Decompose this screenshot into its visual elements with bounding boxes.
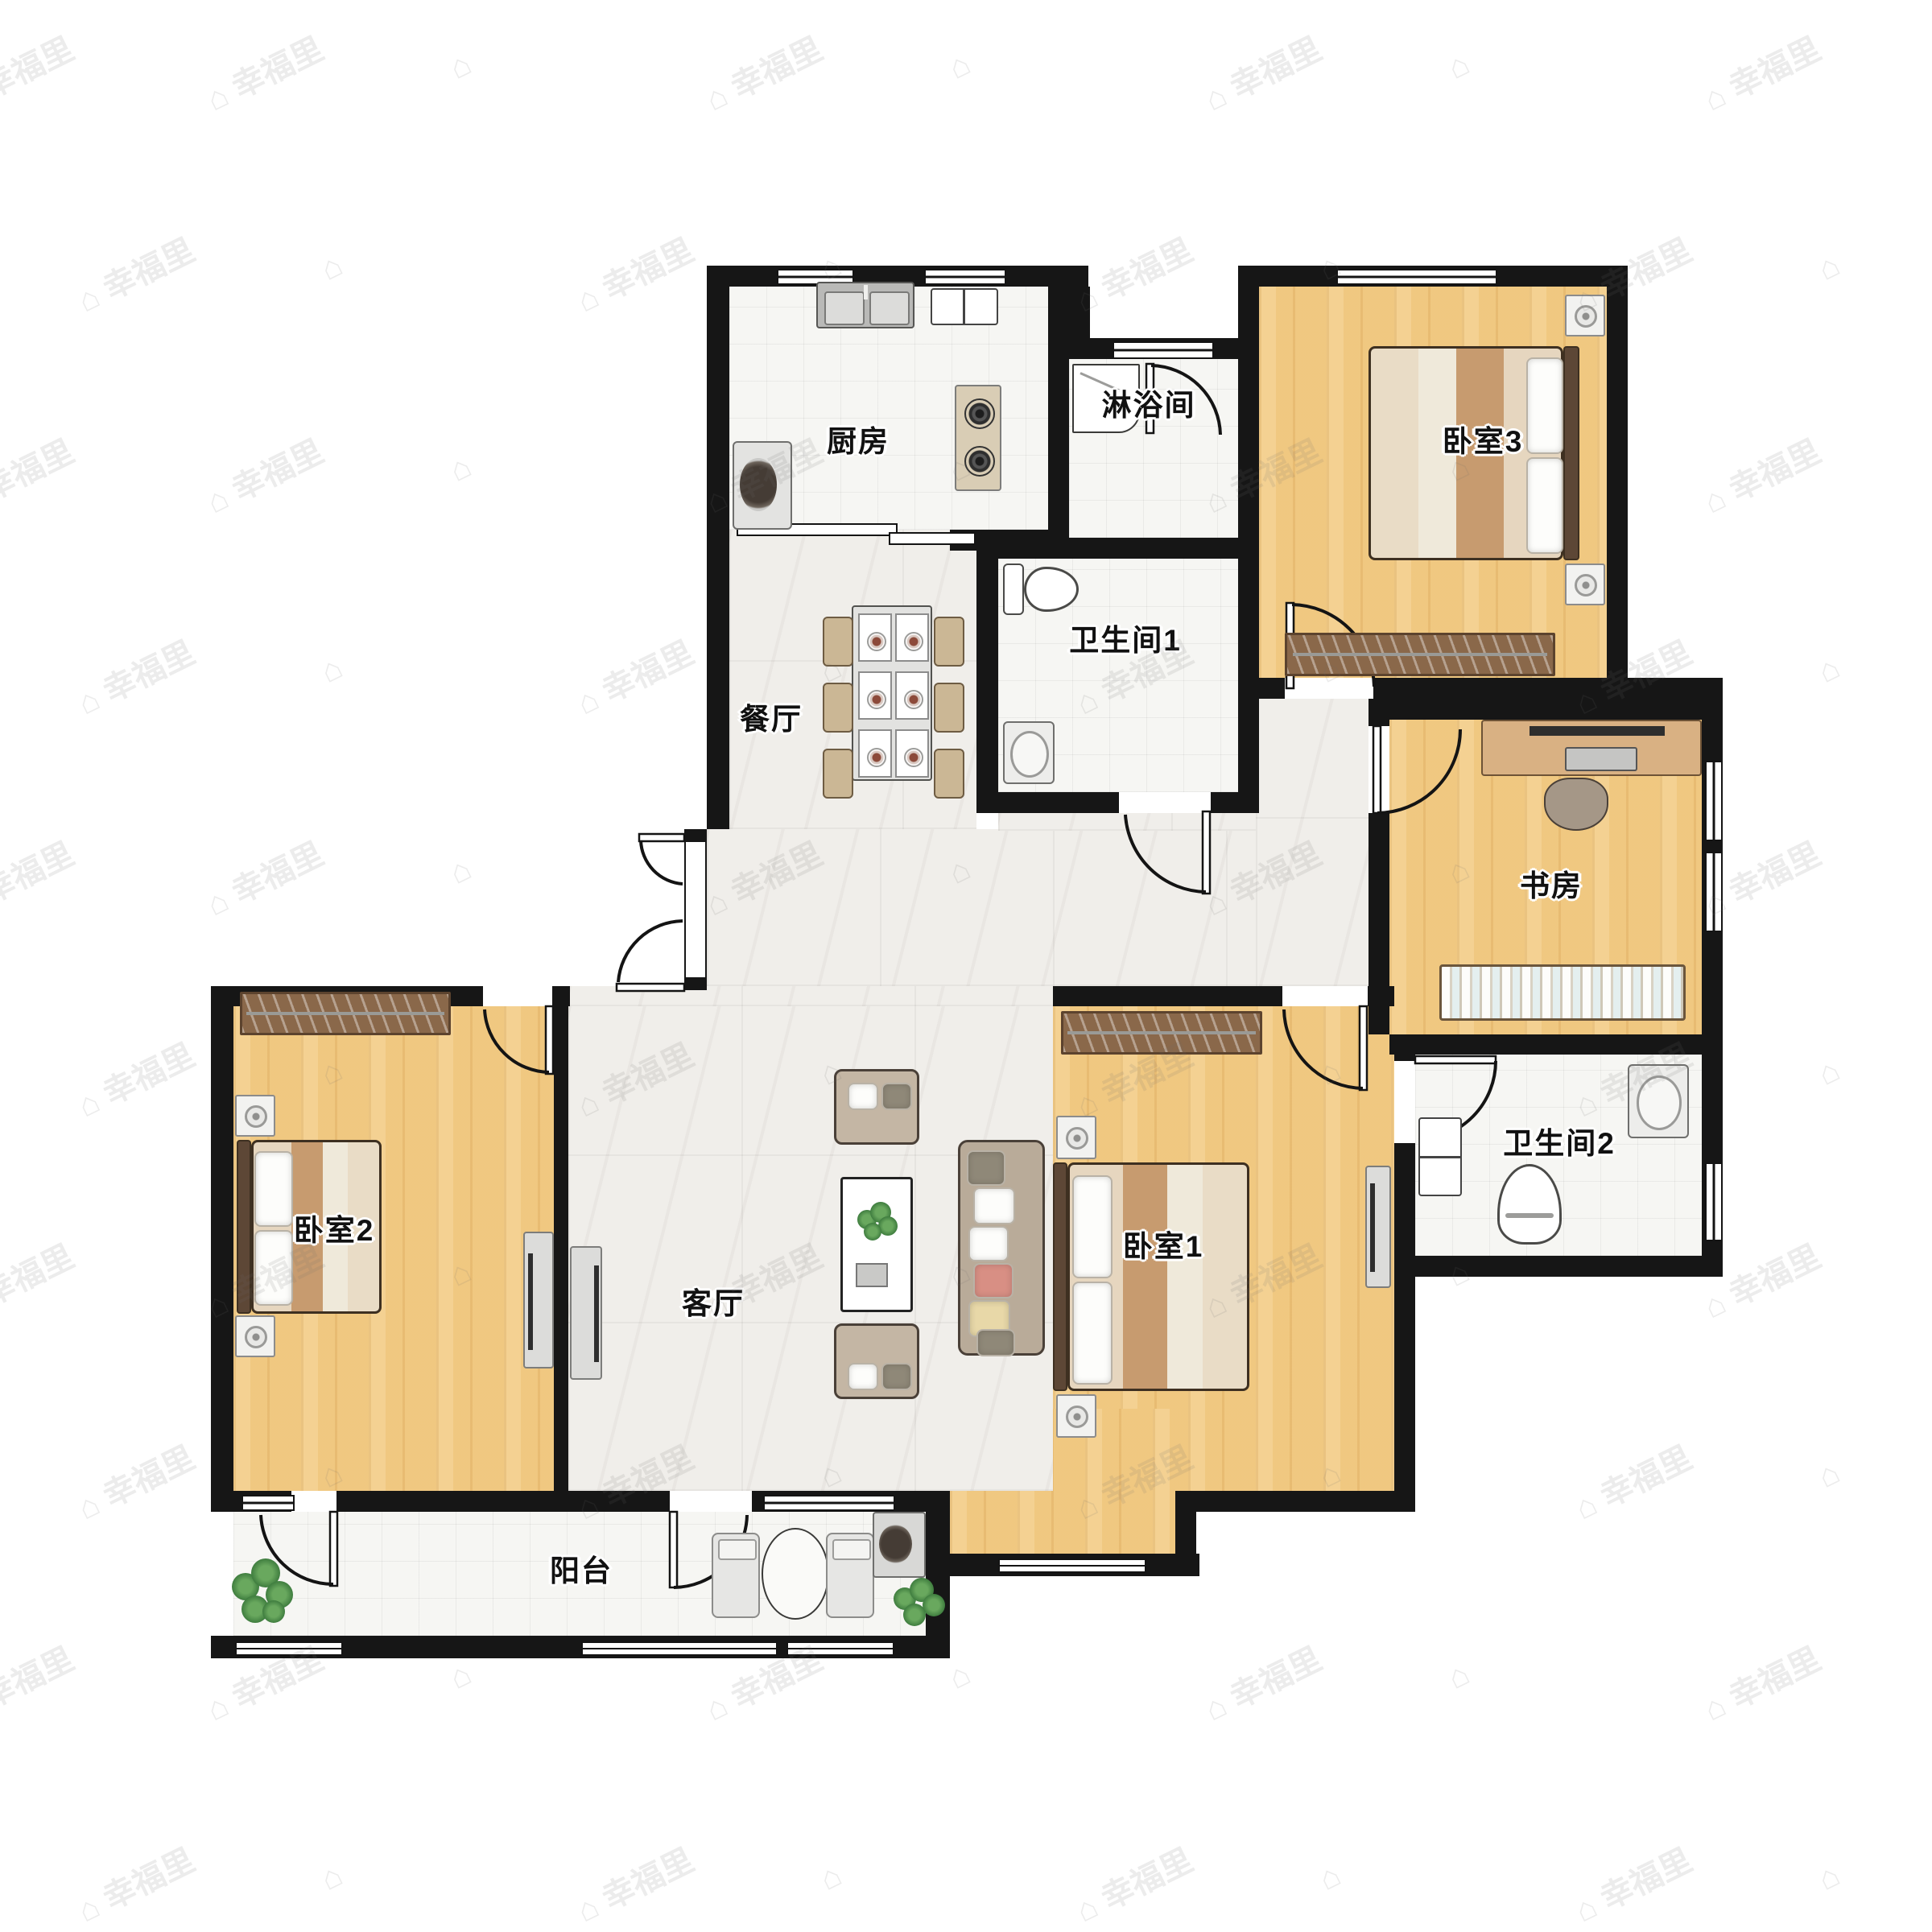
wall [1389, 699, 1723, 720]
corridor-floor [1256, 699, 1368, 986]
room-label-bedroom2: 卧室2 [294, 1206, 375, 1249]
pillow [1072, 1282, 1113, 1385]
window [1705, 852, 1723, 932]
window [1705, 761, 1723, 841]
watermark: ⌂ 幸福里 [68, 1030, 201, 1126]
toilet-bath1 [1003, 563, 1024, 615]
pillow [254, 1151, 293, 1227]
room-label-balcony: 阳台 [550, 1546, 613, 1590]
watermark: ⌂ [1313, 1857, 1346, 1898]
window [998, 1558, 1146, 1573]
dining-chair [823, 683, 853, 733]
armchair [834, 1323, 919, 1399]
dining-chair [823, 749, 853, 799]
watermark: ⌂ [1442, 1656, 1475, 1697]
window [1113, 341, 1214, 359]
wall [1238, 287, 1259, 813]
dining-table [852, 605, 932, 781]
window [1336, 269, 1497, 285]
stove [955, 385, 1001, 491]
watermark: ⌂ 幸福里 [1695, 426, 1827, 522]
kitchen-sink [816, 282, 914, 328]
watermark: ⌂ [1812, 247, 1845, 288]
dining-chair [823, 617, 853, 667]
door-opening [291, 1491, 336, 1512]
watermark: ⌂ [315, 247, 348, 288]
watermark: ⌂ 幸福里 [1566, 1835, 1699, 1931]
wall [976, 541, 998, 813]
watermark: ⌂ 幸福里 [197, 828, 330, 925]
watermark: ⌂ 幸福里 [0, 1231, 80, 1327]
room-label-dining: 餐厅 [740, 695, 803, 738]
window [235, 1641, 343, 1656]
wardrobe-bedroom3 [1285, 633, 1555, 676]
wardrobe-bedroom1 [1061, 1011, 1262, 1055]
pillow [254, 1230, 293, 1306]
door-bath1 [1122, 811, 1212, 898]
wall [1415, 1256, 1723, 1277]
watermark: ⌂ 幸福里 [1695, 23, 1827, 120]
watermark: ⌂ [444, 46, 477, 87]
wall [211, 986, 233, 1512]
wall [1175, 1491, 1415, 1512]
wall [554, 1006, 568, 1491]
dining-chair [934, 683, 964, 733]
room-label-bath1: 卫生间1 [1069, 616, 1182, 659]
watermark: ⌂ 幸福里 [0, 426, 80, 522]
wall [1389, 1034, 1723, 1055]
watermark: ⌂ 幸福里 [1195, 1633, 1328, 1730]
door-opening [686, 842, 705, 977]
plant [892, 1576, 948, 1629]
sofa [958, 1140, 1045, 1356]
tv-console-bedroom2 [523, 1232, 554, 1368]
watermark: ⌂ 幸福里 [568, 627, 700, 724]
watermark: ⌂ 幸福里 [197, 426, 330, 522]
watermark: ⌂ [1442, 46, 1475, 87]
room-label-kitchen: 厨房 [827, 417, 890, 460]
wardrobe-bedroom2 [240, 992, 451, 1035]
watermark: ⌂ 幸福里 [696, 23, 829, 120]
pillow [1526, 457, 1563, 554]
plant [230, 1557, 298, 1628]
wall [552, 986, 570, 1006]
watermark: ⌂ [1812, 1052, 1845, 1093]
window [786, 1641, 894, 1656]
tv-console-living [570, 1246, 602, 1380]
sliding-door-kitchen [889, 532, 976, 545]
wall [1048, 266, 1069, 559]
room-label-living: 客厅 [682, 1279, 745, 1323]
bath2-shelf [1418, 1117, 1462, 1196]
nightstand [235, 1095, 275, 1137]
nightstand [1056, 1116, 1096, 1159]
watermark: ⌂ [315, 1857, 348, 1898]
door-opening [1282, 986, 1368, 1006]
nightstand [1565, 295, 1605, 336]
bed-headboard-bedroom2 [237, 1140, 251, 1314]
washing-machine [873, 1512, 926, 1578]
pillow [1526, 357, 1563, 454]
watermark: ⌂ [444, 851, 477, 892]
room-label-bedroom3: 卧室3 [1443, 417, 1524, 460]
room-label-study: 书房 [1520, 861, 1583, 905]
room-label-bedroom1: 卧室1 [1123, 1222, 1204, 1265]
lounge-chair [712, 1533, 760, 1618]
watermark: ⌂ 幸福里 [568, 225, 700, 321]
window [581, 1641, 778, 1656]
watermark: ⌂ 幸福里 [0, 828, 80, 925]
door-bedroom1 [1282, 1006, 1369, 1093]
watermark: ⌂ 幸福里 [68, 1432, 201, 1529]
wall [1368, 699, 1389, 726]
window [242, 1495, 295, 1511]
wall [1607, 266, 1628, 699]
kitchen-cabinet [931, 288, 998, 325]
watermark: ⌂ 幸福里 [1195, 23, 1328, 120]
door-bedroom2 [483, 1006, 554, 1077]
nightstand [1056, 1394, 1096, 1438]
watermark: ⌂ [1812, 1455, 1845, 1496]
watermark: ⌂ 幸福里 [68, 225, 201, 321]
floor-plan: 厨房淋浴间卫生间1卧室3餐厅书房卫生间2卧室2客厅卧室1阳台 ⌂ 幸福里⌂ 幸福… [0, 0, 1932, 1932]
watermark: ⌂ [444, 448, 477, 489]
door-opening [1394, 1061, 1415, 1143]
desk-chair [1544, 778, 1608, 831]
desk [1481, 720, 1702, 776]
coffee-table [840, 1177, 913, 1312]
lounge-chair [826, 1533, 874, 1618]
door-opening [670, 1491, 752, 1512]
fridge [733, 441, 792, 530]
watermark: ⌂ 幸福里 [68, 627, 201, 724]
bookshelf [1439, 964, 1686, 1021]
balcony-table [762, 1528, 829, 1620]
bed-headboard-bedroom1 [1053, 1162, 1067, 1391]
sink-bath1 [1003, 721, 1055, 784]
room-label-bath2: 卫生间2 [1503, 1119, 1616, 1162]
door-study [1373, 726, 1463, 816]
nightstand [235, 1315, 275, 1357]
sink-bath2 [1628, 1064, 1689, 1138]
tv-console-bedroom1 [1365, 1166, 1391, 1288]
watermark: ⌂ [444, 1656, 477, 1697]
watermark: ⌂ 幸福里 [0, 23, 80, 120]
watermark: ⌂ 幸福里 [197, 23, 330, 120]
armchair [834, 1069, 919, 1145]
pillow [1072, 1175, 1113, 1278]
window [763, 1495, 895, 1511]
door-opening [483, 986, 552, 1006]
watermark: ⌂ [315, 650, 348, 691]
wall [1069, 287, 1090, 341]
wall [707, 266, 729, 829]
watermark: ⌂ 幸福里 [68, 1835, 201, 1931]
dining-chair [934, 749, 964, 799]
bed-headboard-bedroom3 [1563, 346, 1579, 560]
watermark: ⌂ [814, 1857, 847, 1898]
wall [1628, 678, 1723, 699]
watermark: ⌂ [943, 1656, 976, 1697]
watermark: ⌂ [1812, 650, 1845, 691]
door-entry-double [596, 832, 687, 993]
watermark: ⌂ 幸福里 [1067, 1835, 1199, 1931]
window [924, 269, 1006, 285]
watermark: ⌂ [1812, 1857, 1845, 1898]
watermark: ⌂ 幸福里 [1566, 1432, 1699, 1529]
wall [998, 538, 1238, 559]
nightstand [1565, 563, 1605, 605]
room-label-shower: 淋浴间 [1102, 381, 1196, 424]
watermark: ⌂ 幸福里 [0, 1633, 80, 1730]
door-opening [1119, 792, 1211, 813]
watermark: ⌂ 幸福里 [1695, 1633, 1827, 1730]
dining-chair [934, 617, 964, 667]
window [1705, 1162, 1723, 1241]
watermark: ⌂ [943, 46, 976, 87]
watermark: ⌂ 幸福里 [568, 1835, 700, 1931]
